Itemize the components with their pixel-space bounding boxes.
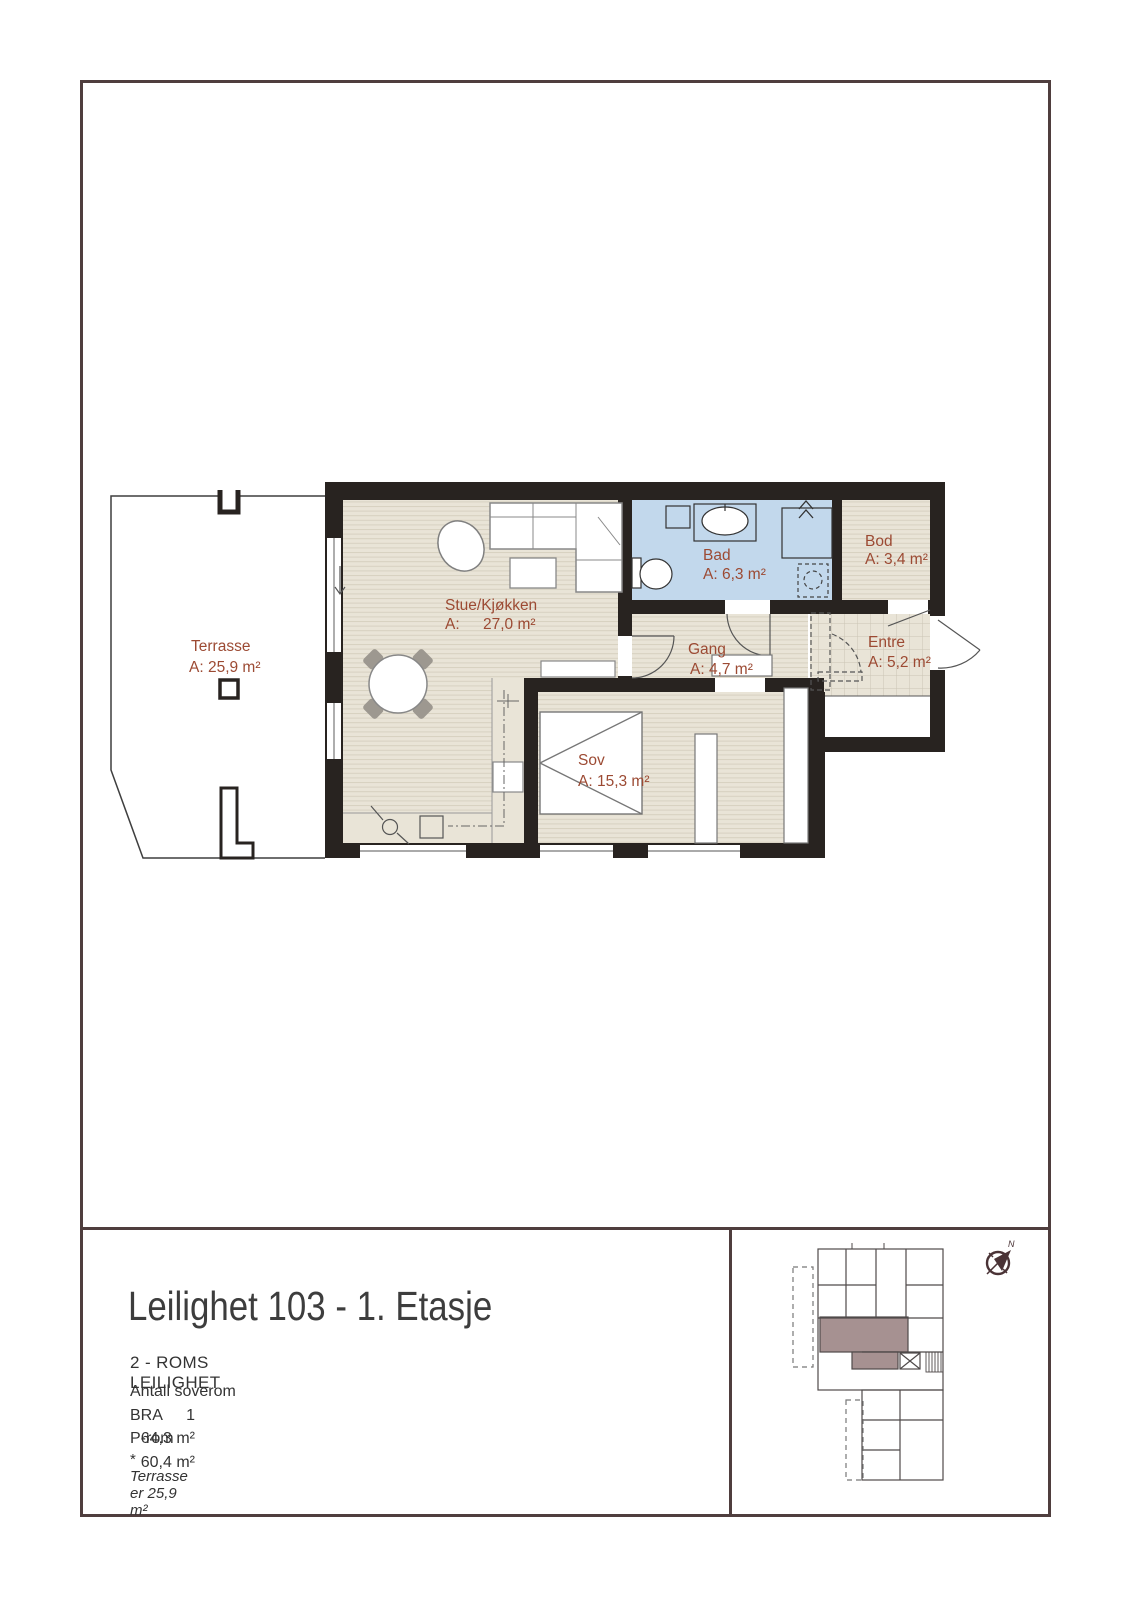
spec-row-prom: P-rom60,4 m² <box>130 1427 320 1451</box>
room-area-gang: A: 4,7 m² <box>690 661 753 678</box>
room-area-entre: A: 5,2 m² <box>868 654 931 671</box>
wardrobe-2 <box>784 688 808 843</box>
overview-highlight <box>820 1317 908 1352</box>
floorplan-sheet: Terrasse A: 25,9 m² Stue/Kjøkken A: 27,0… <box>0 0 1131 1600</box>
sideboard <box>541 661 615 677</box>
overview-highlight-2 <box>852 1352 898 1369</box>
room-area-value-stue: 27,0 m² <box>483 616 536 633</box>
overview-map <box>793 1243 943 1480</box>
dining-table <box>369 655 427 713</box>
fridge <box>493 762 523 792</box>
wardrobe-1 <box>695 734 717 843</box>
spec-table: Antall soverom1 BRA64,3 m² P-rom60,4 m² <box>130 1380 320 1451</box>
storage-floor <box>842 500 930 600</box>
room-label-sov: Sov <box>578 752 605 769</box>
spec-label: Antall soverom <box>130 1380 320 1404</box>
sheet-title: Leilighet 103 - 1. Etasje <box>128 1283 492 1330</box>
titleblock-divider <box>80 1227 1051 1230</box>
room-area-sov: A: 15,3 m² <box>578 773 650 790</box>
coffee-table <box>510 558 556 588</box>
room-area-prefix-stue: A: <box>445 616 460 633</box>
spec-row-bra: BRA64,3 m² <box>130 1404 320 1428</box>
dining-set <box>362 648 434 720</box>
room-label-stue: Stue/Kjøkken <box>445 597 537 614</box>
room-label-bad: Bad <box>703 547 731 564</box>
terrace-column <box>220 680 238 698</box>
room-area-bod: A: 3,4 m² <box>865 551 928 568</box>
spec-row-bedrooms: Antall soverom1 <box>130 1380 320 1404</box>
footnote-text: Terrasse er 25,9 m² <box>130 1468 188 1519</box>
spec-label: P-rom <box>130 1427 320 1451</box>
overview-elevator <box>900 1353 920 1369</box>
toilet-bowl <box>640 559 672 589</box>
basin <box>702 507 748 535</box>
room-label-bod: Bod <box>865 533 893 550</box>
room-area-terrasse: A: 25,9 m² <box>189 659 261 676</box>
footnote-mark: * <box>130 1451 158 1468</box>
terrace-corner-column <box>221 788 253 858</box>
spec-label: BRA <box>130 1404 320 1428</box>
terrace-footnote: *Terrasse er 25,9 m² <box>130 1451 188 1519</box>
north-label: N <box>1008 1239 1015 1249</box>
overview-stairs <box>926 1352 943 1372</box>
room-label-entre: Entre <box>868 634 905 651</box>
room-label-terrasse: Terrasse <box>191 638 250 655</box>
titleblock-vertical-divider <box>729 1227 732 1517</box>
north-compass-icon: N <box>987 1239 1015 1274</box>
room-area-bad: A: 6,3 m² <box>703 566 766 583</box>
room-label-gang: Gang <box>688 641 726 658</box>
